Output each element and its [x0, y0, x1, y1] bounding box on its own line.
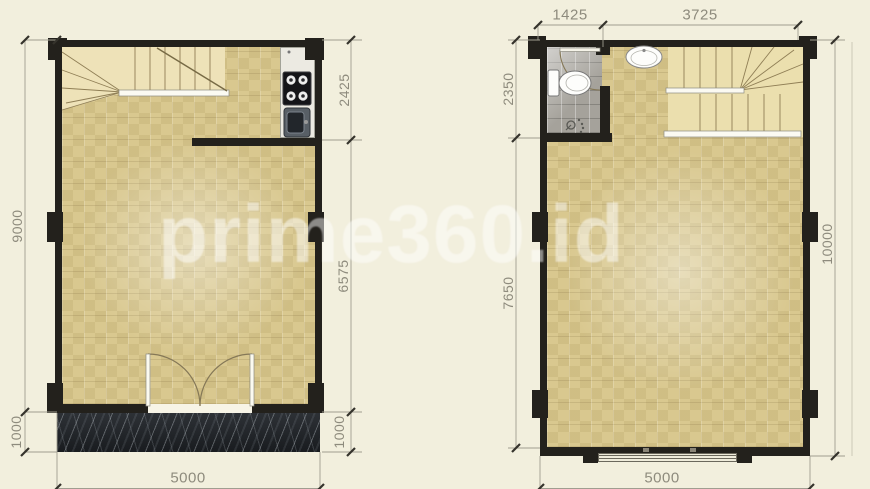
- dim-label-top-left: 1425: [552, 7, 587, 24]
- staircase-left-icon: [62, 47, 229, 110]
- stove-icon: [283, 72, 311, 105]
- shower-icon: [566, 119, 584, 133]
- dim-label-right-bottom: 5000: [644, 470, 679, 487]
- window-icon: [599, 456, 736, 459]
- dim-label-top-right: 3725: [682, 7, 717, 24]
- dim-label-inner-top: 2425: [336, 73, 352, 106]
- dim-label-side-total: 10000: [819, 223, 835, 264]
- dim-label-left-porch: 1000: [8, 415, 24, 448]
- toilet-icon: [548, 70, 591, 96]
- dim-label-inner-main: 6575: [335, 259, 351, 292]
- dim-label-side-main: 7650: [500, 276, 516, 309]
- plan-linework: [0, 0, 870, 489]
- dim-label-inner-porch: 1000: [331, 415, 347, 448]
- dim-label-side-top: 2350: [500, 72, 516, 105]
- wash-basin-icon: [626, 46, 662, 68]
- double-door-icon: [146, 354, 254, 406]
- staircase-right-icon: [664, 47, 803, 137]
- floorplan-canvas: 9000 1000 2425 6575 1000 5000 1425 3725 …: [0, 0, 870, 489]
- dim-label-left-total: 9000: [9, 209, 25, 242]
- dim-label-left-bottom: 5000: [170, 470, 205, 487]
